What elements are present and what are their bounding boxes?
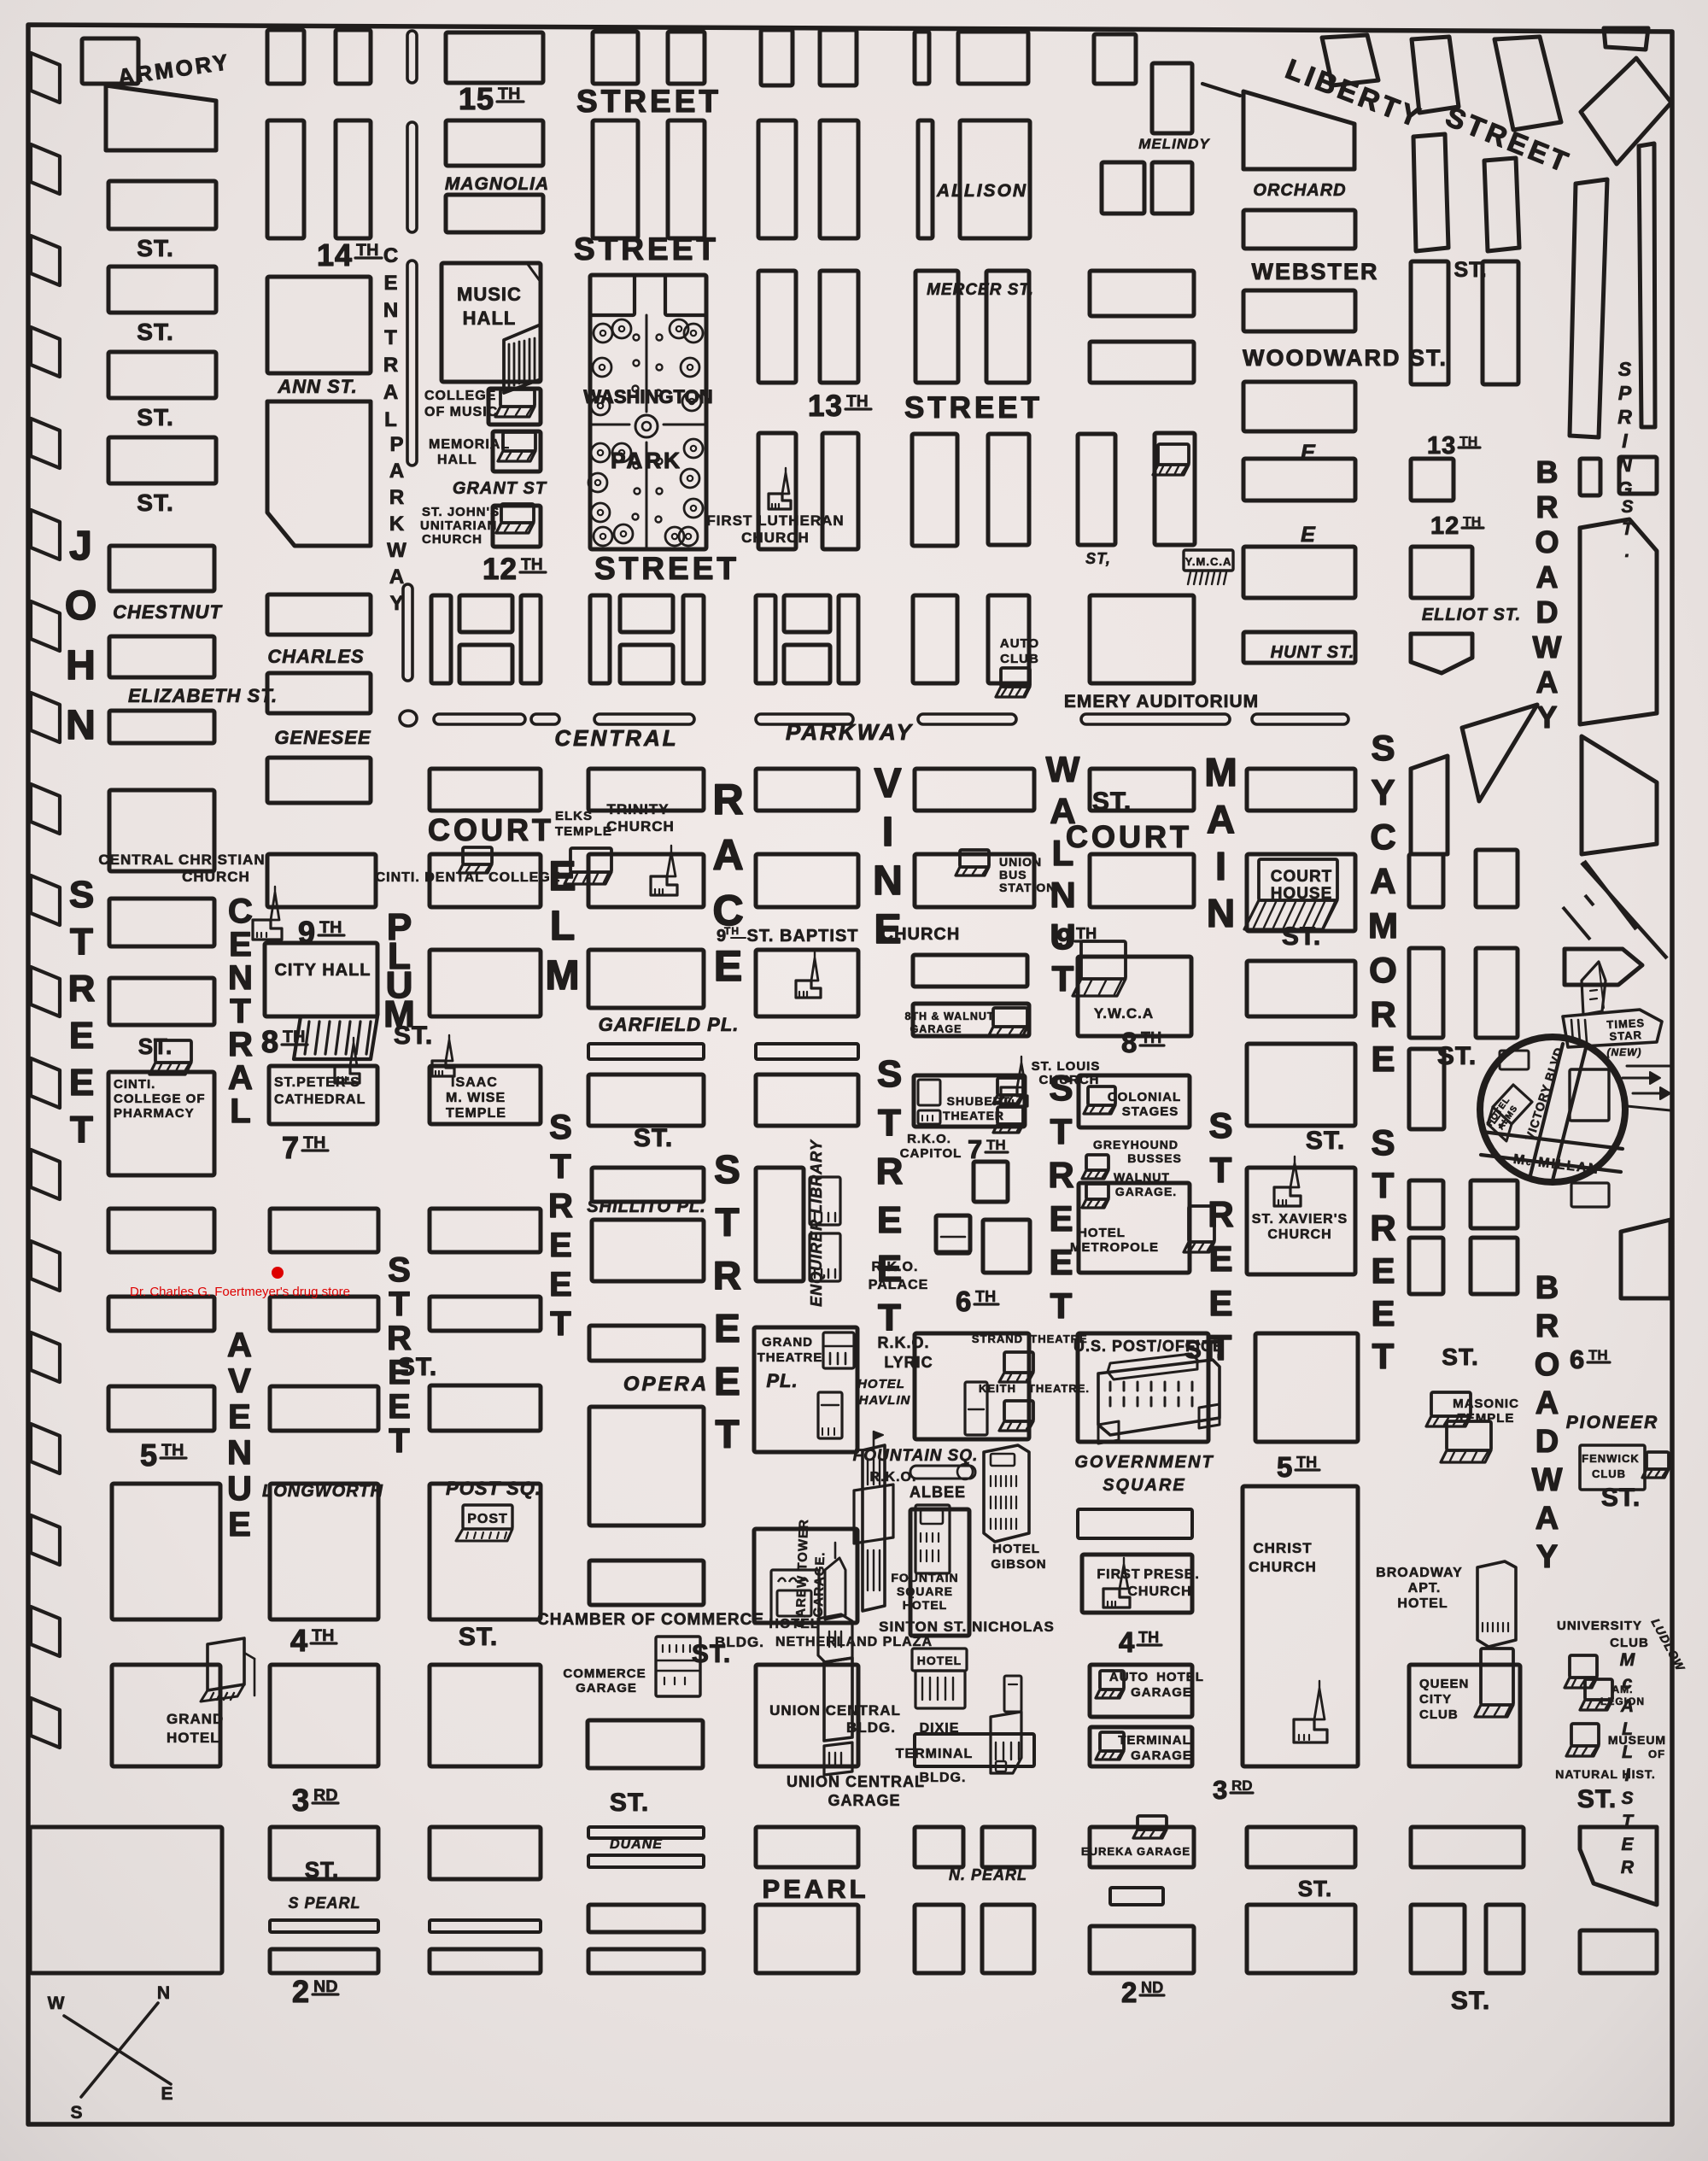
svg-text:ST. BAPTIST: ST. BAPTIST: [746, 927, 858, 946]
svg-text:7: 7: [282, 1130, 300, 1165]
svg-text:ELLIOT ST.: ELLIOT ST.: [1422, 606, 1521, 624]
svg-text:PRESB.: PRESB.: [1144, 1567, 1200, 1582]
svg-text:STAGES: STAGES: [1122, 1104, 1179, 1119]
svg-text:CATHEDRAL: CATHEDRAL: [274, 1092, 366, 1107]
svg-text:T: T: [230, 993, 251, 1030]
svg-text:CLUB: CLUB: [1000, 652, 1039, 666]
svg-text:HOTEL: HOTEL: [857, 1377, 905, 1391]
svg-text:T: T: [1052, 958, 1075, 999]
svg-text:12: 12: [483, 553, 518, 586]
svg-text:Y.M.C.A: Y.M.C.A: [1185, 555, 1232, 568]
svg-text:RD: RD: [1231, 1777, 1253, 1794]
svg-text:HUNT ST.: HUNT ST.: [1271, 643, 1355, 662]
svg-text:ST. JOHN'S: ST. JOHN'S: [422, 505, 500, 519]
svg-text:E: E: [69, 1062, 95, 1104]
svg-text:ST.: ST.: [1282, 922, 1321, 951]
svg-text:POST SQ.: POST SQ.: [446, 1478, 541, 1499]
svg-text:HOUSE: HOUSE: [1271, 885, 1333, 903]
svg-text:R: R: [68, 968, 97, 1010]
svg-text:R: R: [712, 776, 744, 823]
svg-text:4: 4: [1119, 1626, 1135, 1658]
svg-text:STREET: STREET: [576, 84, 722, 119]
svg-text:O: O: [1535, 524, 1559, 559]
svg-text:DIXIE: DIXIE: [920, 1721, 960, 1736]
svg-text:WASHINGTON: WASHINGTON: [583, 386, 712, 407]
svg-text:GENESEE: GENESEE: [274, 727, 371, 748]
svg-text:R: R: [387, 1320, 412, 1357]
svg-text:SHILLITO PL.: SHILLITO PL.: [587, 1198, 705, 1216]
svg-text:GARAGE: GARAGE: [828, 1792, 900, 1809]
svg-text:U: U: [227, 1470, 253, 1508]
svg-text:.: .: [1625, 542, 1631, 561]
svg-text:UNION CENTRAL: UNION CENTRAL: [769, 1702, 901, 1719]
svg-text:ST.: ST.: [1442, 1344, 1478, 1370]
svg-text:T: T: [1210, 1150, 1233, 1190]
svg-text:I: I: [882, 810, 894, 855]
svg-text:WEBSTER: WEBSTER: [1252, 259, 1379, 284]
svg-text:N. PEARL: N. PEARL: [949, 1866, 1027, 1883]
svg-text:TH: TH: [1076, 925, 1097, 942]
svg-text:A: A: [712, 831, 744, 879]
svg-text:ST.: ST.: [1577, 1785, 1617, 1813]
svg-text:ALBEE: ALBEE: [910, 1484, 966, 1501]
svg-text:S: S: [877, 1053, 903, 1095]
svg-text:TH: TH: [1138, 1629, 1159, 1646]
svg-text:PHARMACY: PHARMACY: [114, 1106, 195, 1121]
svg-text:PALACE: PALACE: [869, 1278, 929, 1292]
svg-text:U.S. POST/OFFICE: U.S. POST/OFFICE: [1073, 1338, 1224, 1355]
svg-text:A: A: [389, 460, 405, 483]
svg-text:A: A: [389, 565, 405, 589]
svg-text:MUSEUM: MUSEUM: [1608, 1733, 1666, 1747]
svg-text:ST.: ST.: [1601, 1484, 1641, 1512]
svg-text:THEATER: THEATER: [943, 1109, 1004, 1122]
svg-text:ND: ND: [1141, 1979, 1163, 1996]
svg-text:FIRST LUTHERAN: FIRST LUTHERAN: [706, 512, 844, 529]
svg-text:R: R: [1208, 1194, 1234, 1234]
svg-text:GRANT ST: GRANT ST: [453, 479, 547, 498]
svg-text:W: W: [1533, 630, 1563, 665]
svg-text:R: R: [1370, 1208, 1396, 1248]
svg-text:MEMORIAL: MEMORIAL: [429, 437, 510, 452]
svg-text:MAGNOLIA: MAGNOLIA: [445, 174, 549, 194]
svg-text:CLUB: CLUB: [1610, 1636, 1649, 1650]
svg-text:V: V: [874, 761, 902, 806]
svg-text:METROPOLE: METROPOLE: [1070, 1240, 1159, 1255]
svg-text:GARAGE: GARAGE: [1131, 1748, 1192, 1763]
svg-text:HALL: HALL: [437, 453, 477, 467]
svg-text:S: S: [1621, 497, 1634, 517]
svg-text:8: 8: [261, 1024, 279, 1059]
svg-text:SQUARE: SQUARE: [1103, 1476, 1186, 1495]
svg-text:T: T: [389, 1422, 410, 1460]
svg-text:CENTRAL CHRISTIAN: CENTRAL CHRISTIAN: [98, 852, 265, 868]
svg-text:C: C: [1370, 817, 1396, 857]
svg-text:K: K: [389, 512, 405, 536]
svg-text:ST.: ST.: [137, 319, 173, 345]
svg-text:E: E: [714, 1306, 741, 1350]
svg-text:BLDG.: BLDG.: [715, 1634, 764, 1650]
svg-text:ANN ST.: ANN ST.: [277, 376, 357, 397]
svg-text:E: E: [1049, 1198, 1073, 1239]
svg-text:FIRST: FIRST: [1097, 1567, 1140, 1582]
svg-text:5: 5: [1277, 1451, 1293, 1483]
svg-text:GARAGE: GARAGE: [576, 1681, 637, 1695]
svg-text:E: E: [69, 1015, 95, 1057]
svg-text:C: C: [383, 244, 399, 267]
svg-text:O: O: [1369, 950, 1398, 990]
svg-text:CHURCH: CHURCH: [1267, 1227, 1331, 1242]
svg-text:T: T: [384, 326, 398, 349]
svg-text:E: E: [161, 2084, 173, 2104]
svg-text:COMMERCE: COMMERCE: [563, 1666, 646, 1681]
svg-text:T: T: [1372, 1336, 1395, 1376]
svg-text:TH: TH: [1296, 1454, 1317, 1471]
svg-text:S: S: [1371, 1122, 1395, 1162]
svg-text:COURT: COURT: [1271, 868, 1333, 886]
svg-text:R.K.O.: R.K.O.: [872, 1260, 919, 1274]
svg-text:W: W: [48, 1994, 66, 2013]
svg-text:THEATRE.: THEATRE.: [1028, 1382, 1090, 1395]
svg-text:BLDG.: BLDG.: [920, 1771, 967, 1785]
svg-text:R: R: [548, 1187, 574, 1225]
svg-text:ST.: ST.: [610, 1789, 649, 1817]
svg-text:E: E: [549, 1227, 573, 1264]
svg-text:2: 2: [292, 1974, 310, 2009]
svg-text:T: T: [878, 1297, 902, 1338]
svg-text:R.K.O.: R.K.O.: [907, 1132, 951, 1146]
svg-text:SQUARE: SQUARE: [897, 1584, 953, 1598]
svg-text:8: 8: [1121, 1027, 1138, 1058]
svg-text:T: T: [1050, 1111, 1073, 1151]
svg-text:E: E: [228, 1506, 252, 1543]
svg-text:Y: Y: [1371, 772, 1395, 812]
svg-text:P: P: [1618, 382, 1632, 404]
svg-text:R: R: [1536, 489, 1559, 524]
svg-text:6: 6: [1570, 1344, 1585, 1374]
svg-text:STREET: STREET: [594, 551, 740, 586]
svg-text:N: N: [1207, 891, 1236, 935]
svg-text:UNITARIAN: UNITARIAN: [420, 518, 497, 533]
svg-text:UNION CENTRAL: UNION CENTRAL: [787, 1773, 925, 1790]
svg-text:E: E: [1371, 1250, 1395, 1291]
svg-text:A: A: [1535, 1385, 1559, 1421]
svg-text:GREYHOUND: GREYHOUND: [1093, 1138, 1179, 1151]
svg-text:COLONIAL: COLONIAL: [1108, 1090, 1181, 1104]
svg-text:ISAAC: ISAAC: [451, 1075, 498, 1090]
svg-text:4: 4: [290, 1623, 308, 1658]
svg-text:TH: TH: [1588, 1347, 1608, 1363]
svg-text:ELIZABETH ST.: ELIZABETH ST.: [128, 685, 278, 706]
svg-text:STAR: STAR: [1609, 1028, 1642, 1043]
svg-text:APT.: APT.: [1408, 1581, 1442, 1596]
svg-text:9: 9: [298, 915, 316, 950]
svg-text:HOTEL: HOTEL: [992, 1542, 1040, 1556]
svg-text:R: R: [1535, 1309, 1559, 1344]
svg-text:PARKWAY: PARKWAY: [786, 719, 914, 745]
svg-text:GARAGE: GARAGE: [1131, 1685, 1192, 1700]
svg-text:P: P: [389, 433, 404, 456]
svg-text:W: W: [387, 539, 407, 562]
svg-text:L: L: [384, 408, 398, 431]
svg-text:Y.W.C.A: Y.W.C.A: [1094, 1005, 1154, 1022]
svg-text:N: N: [227, 1434, 253, 1472]
svg-text:A: A: [1370, 861, 1396, 901]
svg-text:T: T: [70, 1109, 94, 1151]
svg-text:N: N: [228, 959, 254, 997]
svg-text:M: M: [546, 953, 581, 999]
svg-text:AM.: AM.: [1612, 1684, 1634, 1695]
svg-text:N: N: [66, 703, 97, 748]
svg-text:HALL: HALL: [463, 307, 517, 329]
svg-text:CINTI.: CINTI.: [114, 1077, 155, 1092]
svg-text:S: S: [714, 1147, 741, 1192]
svg-text:Y: Y: [389, 592, 404, 615]
svg-text:L: L: [230, 1092, 251, 1130]
svg-text:TEMPLE: TEMPLE: [1458, 1411, 1515, 1426]
svg-text:E: E: [549, 1266, 573, 1303]
svg-text:S: S: [549, 1109, 573, 1146]
svg-text:HOTEL: HOTEL: [1156, 1670, 1204, 1684]
svg-text:ST.: ST.: [137, 404, 173, 430]
svg-text:3: 3: [1213, 1775, 1228, 1805]
svg-text:E: E: [714, 1359, 741, 1403]
svg-text:A: A: [1207, 797, 1236, 841]
svg-text:TH: TH: [986, 1137, 1006, 1153]
svg-text:PARK: PARK: [611, 448, 682, 473]
svg-text:CHURCH: CHURCH: [422, 532, 483, 547]
svg-text:N: N: [383, 299, 399, 322]
svg-text:T: T: [1622, 519, 1635, 539]
svg-text:CHRIST: CHRIST: [1253, 1540, 1312, 1556]
svg-text:ST.: ST.: [1451, 1987, 1490, 2015]
svg-text:E: E: [877, 1199, 903, 1241]
svg-text:GARAGE.: GARAGE.: [1115, 1185, 1177, 1198]
svg-text:ST.: ST.: [634, 1124, 673, 1152]
svg-text:TEMPLE: TEMPLE: [446, 1106, 506, 1121]
svg-text:8TH & WALNUT: 8TH & WALNUT: [904, 1010, 994, 1022]
svg-text:UNIVERSITY: UNIVERSITY: [1557, 1619, 1642, 1633]
svg-text:ORCHARD: ORCHARD: [1253, 181, 1346, 200]
svg-text:ST. XAVIER'S: ST. XAVIER'S: [1252, 1212, 1348, 1227]
svg-text:T: T: [389, 1285, 410, 1323]
svg-text:R.K.O.: R.K.O.: [877, 1334, 929, 1351]
svg-text:POST: POST: [467, 1512, 508, 1526]
svg-text:GIBSON: GIBSON: [991, 1557, 1046, 1572]
svg-text:GARFIELD PL.: GARFIELD PL.: [599, 1014, 740, 1035]
svg-text:STREET: STREET: [574, 231, 719, 266]
svg-text:CENTRAL: CENTRAL: [554, 725, 678, 751]
svg-text:I: I: [1215, 844, 1227, 888]
svg-text:R: R: [1617, 406, 1633, 428]
svg-text:S: S: [70, 2103, 83, 2123]
svg-text:2: 2: [1121, 1977, 1138, 2008]
svg-text:LONGWORTH: LONGWORTH: [262, 1482, 383, 1501]
svg-text:CHURCH: CHURCH: [741, 530, 810, 546]
svg-text:D: D: [1536, 594, 1559, 630]
svg-text:S: S: [1371, 728, 1395, 768]
svg-text:HOTEL: HOTEL: [903, 1598, 947, 1612]
svg-text:S: S: [388, 1251, 412, 1289]
svg-text:6: 6: [956, 1285, 972, 1317]
svg-text:A: A: [1536, 665, 1559, 700]
svg-text:HOTEL: HOTEL: [917, 1654, 962, 1667]
svg-text:LYRIC: LYRIC: [884, 1354, 933, 1371]
svg-text:M. WISE: M. WISE: [446, 1091, 506, 1105]
svg-text:T: T: [70, 921, 94, 963]
svg-text:BUS: BUS: [999, 868, 1027, 881]
svg-text:O: O: [65, 583, 97, 629]
svg-text:E: E: [1301, 523, 1316, 547]
svg-text:3: 3: [292, 1783, 310, 1818]
svg-text:TH: TH: [724, 925, 740, 937]
svg-text:B: B: [1535, 1270, 1559, 1306]
svg-text:COURT: COURT: [1066, 819, 1192, 854]
svg-text:ST.: ST.: [1437, 1042, 1477, 1070]
svg-text:NATURAL HIST.: NATURAL HIST.: [1555, 1767, 1655, 1781]
svg-text:T: T: [550, 1148, 571, 1186]
svg-text:R: R: [1048, 1155, 1074, 1195]
svg-text:HOTEL: HOTEL: [1397, 1596, 1448, 1611]
svg-text:T: T: [878, 1102, 902, 1144]
svg-text:CHESTNUT: CHESTNUT: [113, 601, 222, 623]
svg-text:T: T: [715, 1412, 740, 1456]
svg-text:CITY: CITY: [1419, 1692, 1452, 1707]
svg-text:GARAGE: GARAGE: [910, 1023, 962, 1035]
svg-text:L: L: [550, 904, 576, 949]
svg-text:ST.: ST.: [1298, 1876, 1333, 1901]
svg-text:UNION: UNION: [999, 855, 1042, 869]
svg-text:CLUB: CLUB: [1592, 1467, 1626, 1480]
svg-text:E: E: [714, 942, 743, 990]
svg-text:S: S: [1621, 1789, 1634, 1808]
svg-text:AUTO: AUTO: [1000, 636, 1039, 651]
svg-text:MUSIC: MUSIC: [457, 284, 522, 305]
svg-text:W: W: [1532, 1462, 1564, 1498]
svg-text:NETHERLAND PLAZA: NETHERLAND PLAZA: [775, 1635, 933, 1649]
svg-text:O: O: [1535, 1347, 1561, 1383]
svg-text:A: A: [383, 381, 399, 404]
svg-text:S PEARL: S PEARL: [288, 1895, 360, 1912]
svg-text:N: N: [873, 858, 904, 904]
svg-text:ST.: ST.: [394, 1022, 433, 1050]
svg-text:OPERA: OPERA: [623, 1373, 709, 1396]
svg-text:MERCER ST.: MERCER ST.: [927, 281, 1034, 299]
svg-text:COURT: COURT: [428, 812, 554, 847]
svg-text:CLUB: CLUB: [1419, 1707, 1459, 1722]
svg-text:BROADWAY: BROADWAY: [1376, 1566, 1463, 1580]
svg-text:COLLEGE OF: COLLEGE OF: [114, 1092, 206, 1106]
svg-text:R: R: [228, 1026, 254, 1063]
svg-text:H: H: [66, 643, 97, 688]
svg-text:QUEEN: QUEEN: [1419, 1677, 1469, 1691]
svg-text:ST.: ST.: [1092, 788, 1132, 816]
svg-text:S: S: [69, 874, 95, 916]
svg-text:15: 15: [459, 81, 494, 116]
svg-text:14: 14: [317, 237, 353, 272]
svg-text:E: E: [1301, 441, 1316, 465]
svg-text:E: E: [388, 1388, 412, 1426]
svg-text:HOTEL: HOTEL: [167, 1730, 220, 1746]
svg-text:I: I: [1622, 430, 1628, 452]
svg-text:ST,: ST,: [1085, 550, 1111, 567]
svg-text:TRINITY: TRINITY: [606, 801, 669, 817]
svg-text:E: E: [229, 926, 253, 963]
svg-text:E: E: [1371, 1293, 1395, 1333]
svg-text:R: R: [383, 354, 399, 377]
svg-text:ST.: ST.: [398, 1353, 437, 1381]
svg-text:KEITH: KEITH: [979, 1382, 1016, 1395]
svg-text:CHAMBER OF COMMERCE: CHAMBER OF COMMERCE: [537, 1611, 764, 1629]
svg-text:ST.: ST.: [459, 1623, 498, 1651]
svg-text:T: T: [550, 1305, 571, 1343]
svg-text:CHURCH: CHURCH: [606, 818, 675, 835]
svg-text:ST.: ST.: [137, 489, 173, 516]
svg-text:WOODWARD ST.: WOODWARD ST.: [1243, 345, 1448, 371]
svg-text:E: E: [383, 272, 398, 295]
svg-text:7: 7: [968, 1134, 983, 1164]
svg-text:MELINDY: MELINDY: [1138, 136, 1210, 152]
svg-text:C: C: [228, 893, 254, 930]
svg-text:STRAND: STRAND: [972, 1332, 1023, 1345]
svg-text:T: T: [1050, 1285, 1073, 1326]
svg-text:HAVLIN: HAVLIN: [859, 1393, 911, 1408]
svg-text:GRAND: GRAND: [167, 1711, 224, 1727]
svg-text:FENWICK: FENWICK: [1582, 1452, 1640, 1465]
svg-text:STATION: STATION: [999, 881, 1056, 894]
svg-text:ELKS: ELKS: [555, 809, 593, 823]
svg-text:WALNUT: WALNUT: [1114, 1170, 1170, 1184]
svg-text:R: R: [1370, 994, 1396, 1034]
svg-text:TERMINAL: TERMINAL: [1118, 1733, 1191, 1748]
svg-text:CITY HALL: CITY HALL: [274, 961, 371, 980]
svg-text:N: N: [1617, 454, 1633, 476]
svg-text:E: E: [1208, 1283, 1233, 1323]
svg-text:B: B: [1536, 454, 1559, 489]
svg-text:COLLEGE: COLLEGE: [424, 389, 496, 403]
svg-text:ST.: ST.: [1306, 1127, 1345, 1155]
svg-text:W: W: [1046, 749, 1081, 789]
svg-text:ST.: ST.: [137, 235, 173, 261]
svg-text:E: E: [228, 1398, 252, 1436]
svg-text:R: R: [713, 1253, 742, 1297]
svg-text:T: T: [1622, 1812, 1635, 1831]
svg-text:D: D: [1535, 1424, 1559, 1460]
svg-text:OF: OF: [1648, 1748, 1665, 1760]
svg-text:M: M: [1204, 750, 1237, 794]
svg-text:J: J: [69, 524, 93, 569]
svg-text:CHURCH: CHURCH: [1127, 1584, 1191, 1599]
svg-text:T: T: [715, 1200, 740, 1244]
svg-text:MASONIC: MASONIC: [1453, 1397, 1519, 1411]
svg-text:9: 9: [1056, 922, 1073, 954]
svg-text:R: R: [389, 486, 405, 509]
svg-text:TH: TH: [1141, 1029, 1161, 1046]
svg-text:DUANE: DUANE: [610, 1837, 663, 1852]
svg-text:CAPITOL: CAPITOL: [900, 1146, 962, 1161]
svg-text:13: 13: [808, 389, 843, 423]
svg-text:EMERY AUDITORIUM: EMERY AUDITORIUM: [1064, 692, 1259, 712]
svg-text:M: M: [1368, 905, 1399, 946]
svg-text:ST.: ST.: [1454, 258, 1487, 282]
svg-text:ALLISON: ALLISON: [936, 181, 1027, 201]
svg-text:BUSSES: BUSSES: [1127, 1151, 1182, 1165]
svg-text:A: A: [227, 1326, 253, 1364]
svg-text:HOTEL: HOTEL: [1078, 1226, 1126, 1240]
svg-text:S: S: [1208, 1105, 1233, 1145]
svg-text:A: A: [1535, 1501, 1559, 1537]
svg-text:TEMPLE: TEMPLE: [555, 824, 612, 839]
